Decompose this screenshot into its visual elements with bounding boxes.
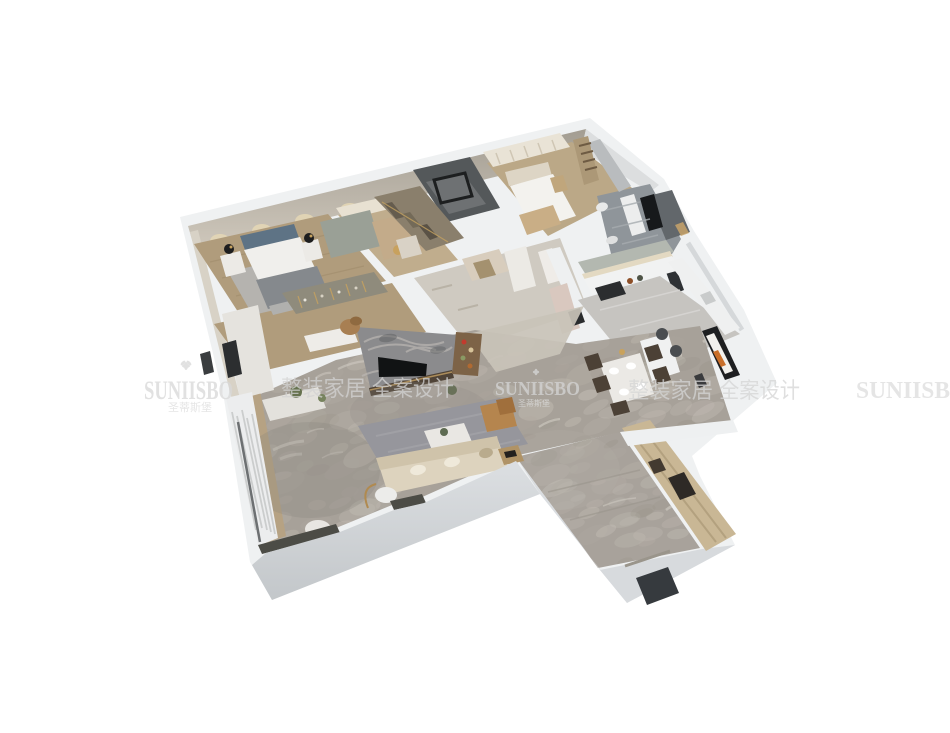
svg-text:全案设计: 全案设计 [719,378,800,403]
svg-text:整装家居: 整装家居 [281,376,366,401]
svg-text:全案设计: 全案设计 [372,376,454,401]
svg-text:SUNIISBO: SUNIISBO [495,378,580,400]
svg-text:SUNIISB: SUNIISB [856,378,950,404]
svg-text:整装家居: 整装家居 [628,378,713,403]
svg-text:圣蒂斯堡: 圣蒂斯堡 [518,398,550,408]
svg-text:圣蒂斯堡: 圣蒂斯堡 [168,400,212,414]
svg-text:SUNIISBO: SUNIISBO [144,376,233,405]
